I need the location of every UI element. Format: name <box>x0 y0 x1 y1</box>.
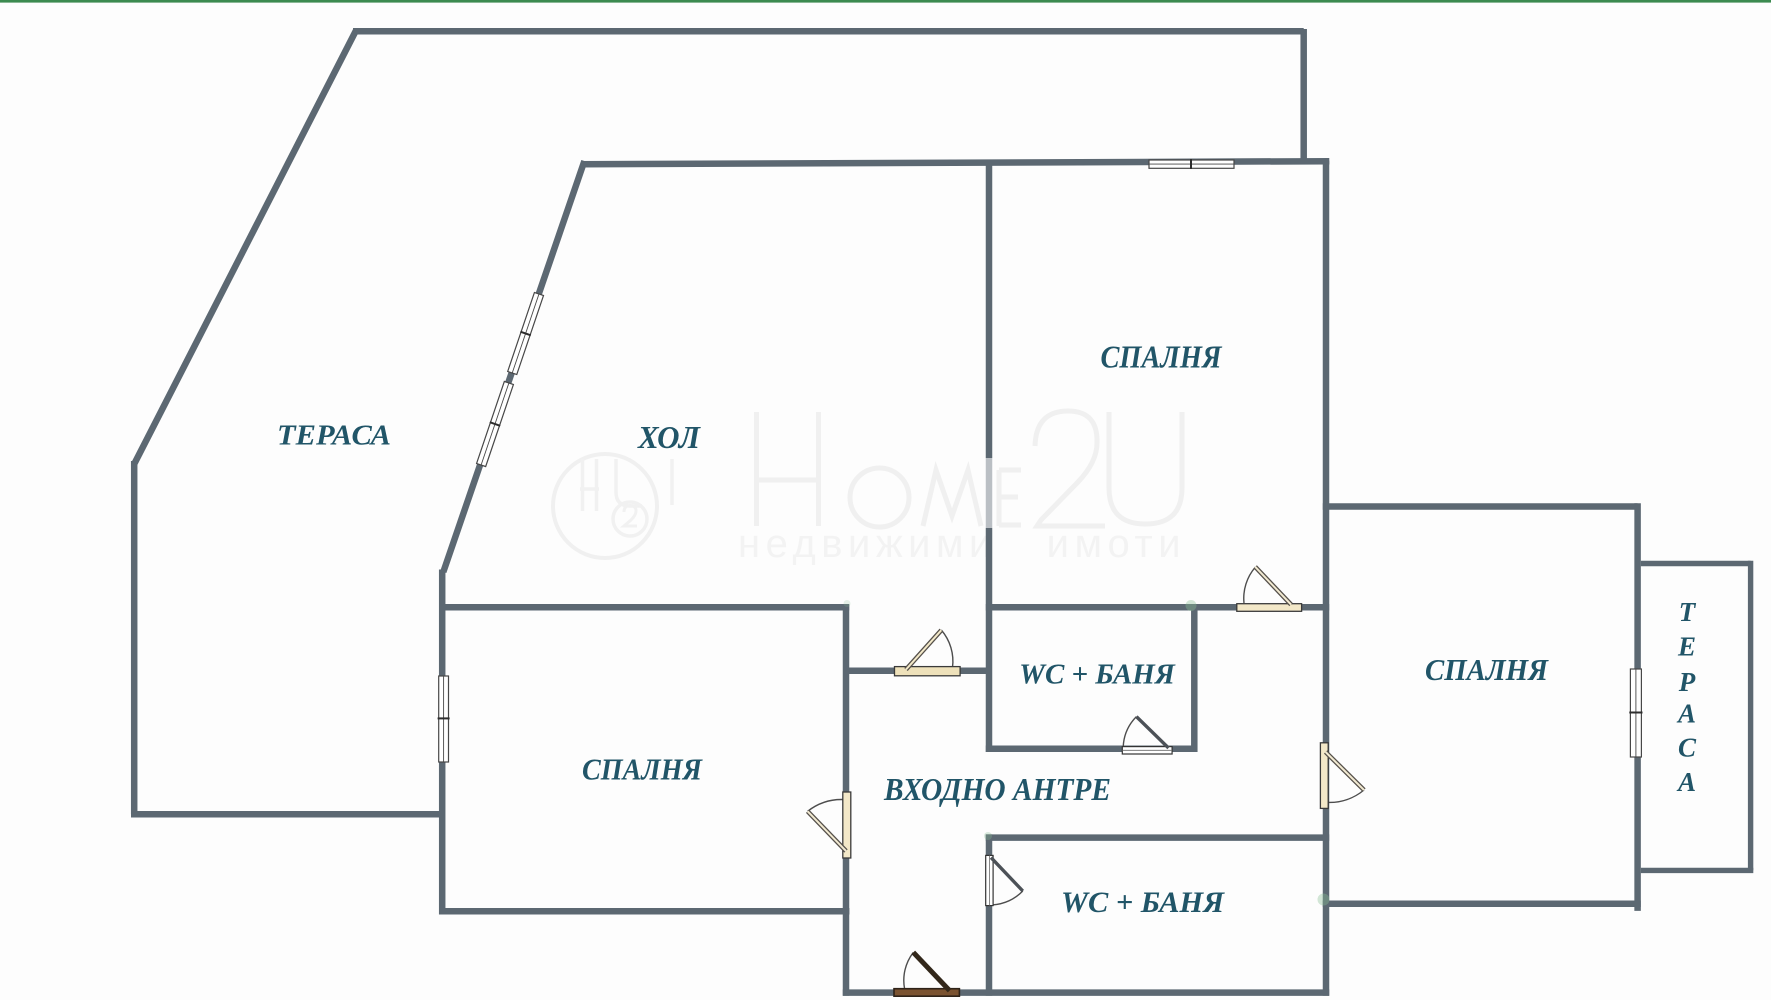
svg-text:СПАЛНЯ: СПАЛНЯ <box>582 752 703 787</box>
svg-text:ТЕРАСА: ТЕРАСА <box>277 420 391 452</box>
svg-text:С: С <box>1678 733 1697 763</box>
svg-text:СПАЛНЯ: СПАЛНЯ <box>1425 652 1550 687</box>
svg-text:СПАЛНЯ: СПАЛНЯ <box>1101 340 1223 375</box>
svg-text:Т: Т <box>1679 597 1697 627</box>
svg-text:недвижими имоти: недвижими имоти <box>738 522 1186 566</box>
svg-text:Р: Р <box>1678 667 1696 697</box>
svg-text:А: А <box>1676 699 1696 729</box>
svg-text:WC + БАНЯ: WC + БАНЯ <box>1061 886 1225 919</box>
svg-text:А: А <box>1676 767 1696 797</box>
svg-text:WC + БАНЯ: WC + БАНЯ <box>1019 659 1176 691</box>
svg-text:ХОЛ: ХОЛ <box>637 420 701 455</box>
svg-text:ВХОДНО АНТРЕ: ВХОДНО АНТРЕ <box>883 771 1111 807</box>
svg-text:Е: Е <box>1677 632 1696 662</box>
